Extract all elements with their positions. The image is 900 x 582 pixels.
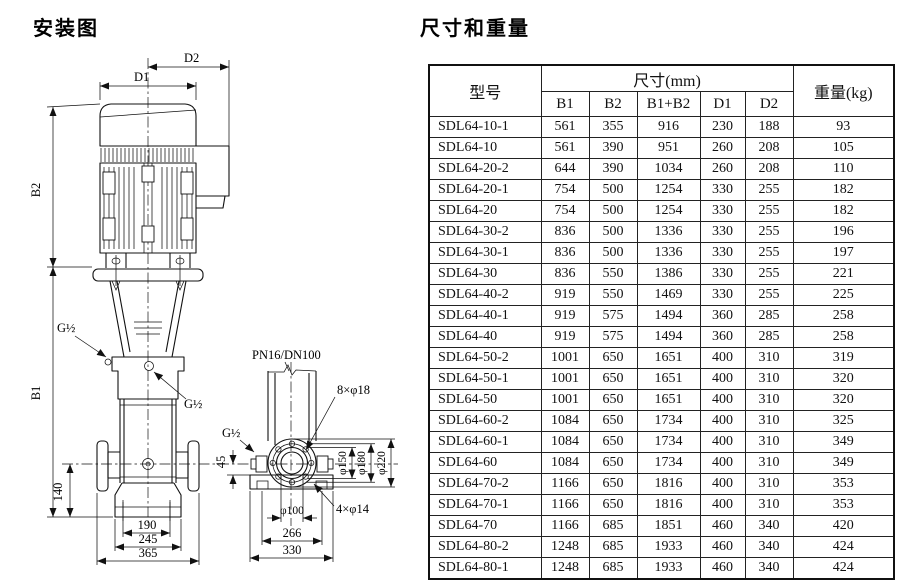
value-cell: 500 (589, 222, 637, 243)
value-cell: 258 (793, 306, 894, 327)
value-cell: 188 (745, 117, 793, 138)
value-cell: 420 (793, 516, 894, 537)
table-row: SDL64-308365501386330255221 (429, 264, 894, 285)
dim-330-label: 330 (283, 543, 302, 557)
model-cell: SDL64-80-1 (429, 558, 541, 580)
value-cell: 460 (700, 537, 745, 558)
value-cell: 1734 (637, 411, 700, 432)
value-cell: 1816 (637, 474, 700, 495)
value-cell: 330 (700, 180, 745, 201)
model-cell: SDL64-30-2 (429, 222, 541, 243)
value-cell: 255 (745, 180, 793, 201)
table-row: SDL64-50-110016501651400310320 (429, 369, 894, 390)
value-cell: 310 (745, 390, 793, 411)
model-cell: SDL64-50-1 (429, 369, 541, 390)
value-cell: 644 (541, 159, 589, 180)
model-cell: SDL64-30-1 (429, 243, 541, 264)
value-cell: 353 (793, 495, 894, 516)
dim-b2-label: B2 (29, 183, 43, 198)
value-cell: 182 (793, 201, 894, 222)
value-cell: 1816 (637, 495, 700, 516)
value-cell: 330 (700, 285, 745, 306)
value-cell: 340 (745, 558, 793, 580)
value-cell: 951 (637, 138, 700, 159)
value-cell: 575 (589, 327, 637, 348)
value-cell: 353 (793, 474, 894, 495)
dim-266-label: 266 (283, 526, 302, 540)
value-cell: 260 (700, 159, 745, 180)
value-cell: 390 (589, 138, 637, 159)
value-cell: 310 (745, 453, 793, 474)
value-cell: 400 (700, 495, 745, 516)
value-cell: 400 (700, 474, 745, 495)
value-cell: 400 (700, 432, 745, 453)
model-cell: SDL64-10 (429, 138, 541, 159)
value-cell: 1001 (541, 369, 589, 390)
port-g12-left-label: G½ (57, 321, 75, 335)
value-cell: 93 (793, 117, 894, 138)
value-cell: 355 (589, 117, 637, 138)
dim-190-label: 190 (138, 518, 157, 532)
dim-phi100-label: φ100 (280, 505, 304, 517)
table-row: SDL64-207545001254330255182 (429, 201, 894, 222)
value-cell: 349 (793, 453, 894, 474)
value-cell: 1386 (637, 264, 700, 285)
value-cell: 400 (700, 453, 745, 474)
model-cell: SDL64-50-2 (429, 348, 541, 369)
table-row: SDL64-10561390951260208105 (429, 138, 894, 159)
dim-365-label: 365 (139, 546, 158, 560)
bolt-holes-4-label: 4×φ14 (336, 502, 370, 516)
value-cell: 836 (541, 264, 589, 285)
value-cell: 1734 (637, 432, 700, 453)
value-cell: 919 (541, 285, 589, 306)
value-cell: 1001 (541, 348, 589, 369)
model-cell: SDL64-60-1 (429, 432, 541, 453)
value-cell: 258 (793, 327, 894, 348)
value-cell: 330 (700, 264, 745, 285)
pump-table-body: SDL64-10-156135591623018893SDL64-1056139… (429, 117, 894, 580)
value-cell: 255 (745, 201, 793, 222)
value-cell: 460 (700, 558, 745, 580)
value-cell: 340 (745, 537, 793, 558)
bolt-holes-8-label: 8×φ18 (337, 383, 370, 397)
table-row: SDL64-70-211666501816400310353 (429, 474, 894, 495)
value-cell: 400 (700, 390, 745, 411)
value-cell: 182 (793, 180, 894, 201)
dim-45-label: 45 (214, 456, 228, 469)
value-cell: 1469 (637, 285, 700, 306)
value-cell: 685 (589, 516, 637, 537)
col-header-d2: D2 (745, 92, 793, 117)
value-cell: 255 (745, 264, 793, 285)
value-cell: 550 (589, 285, 637, 306)
value-cell: 197 (793, 243, 894, 264)
value-cell: 310 (745, 411, 793, 432)
model-cell: SDL64-40-2 (429, 285, 541, 306)
col-header-weight: 重量(kg) (793, 65, 894, 117)
value-cell: 650 (589, 369, 637, 390)
model-cell: SDL64-60-2 (429, 411, 541, 432)
table-row: SDL64-20-26443901034260208110 (429, 159, 894, 180)
col-header-b1: B1 (541, 92, 589, 117)
value-cell: 1084 (541, 432, 589, 453)
value-cell: 1933 (637, 558, 700, 580)
table-row: SDL64-7011666851851460340420 (429, 516, 894, 537)
value-cell: 1248 (541, 558, 589, 580)
model-cell: SDL64-20-2 (429, 159, 541, 180)
dim-245-label: 245 (139, 532, 158, 546)
value-cell: 754 (541, 180, 589, 201)
table-row: SDL64-30-28365001336330255196 (429, 222, 894, 243)
dim-phi180-label: φ180 (356, 451, 368, 475)
value-cell: 561 (541, 138, 589, 159)
value-cell: 110 (793, 159, 894, 180)
value-cell: 685 (589, 558, 637, 580)
value-cell: 1933 (637, 537, 700, 558)
value-cell: 319 (793, 348, 894, 369)
value-cell: 196 (793, 222, 894, 243)
side-view-dimensions: 45 φ100 266 330 φ150 φ180 φ220 (214, 439, 395, 562)
value-cell: 285 (745, 327, 793, 348)
value-cell: 105 (793, 138, 894, 159)
model-cell: SDL64-20-1 (429, 180, 541, 201)
value-cell: 330 (700, 222, 745, 243)
value-cell: 424 (793, 537, 894, 558)
value-cell: 685 (589, 537, 637, 558)
value-cell: 400 (700, 348, 745, 369)
value-cell: 500 (589, 201, 637, 222)
col-header-d1: D1 (700, 92, 745, 117)
dim-b1-label: B1 (29, 386, 43, 401)
value-cell: 1001 (541, 390, 589, 411)
dimensions-weight-table: 型号 尺寸(mm) 重量(kg) B1 B2 B1+B2 D1 D2 SDL64… (428, 64, 895, 580)
value-cell: 1166 (541, 495, 589, 516)
value-cell: 360 (700, 327, 745, 348)
value-cell: 919 (541, 327, 589, 348)
table-row: SDL64-40-29195501469330255225 (429, 285, 894, 306)
value-cell: 255 (745, 285, 793, 306)
value-cell: 260 (700, 138, 745, 159)
value-cell: 1166 (541, 474, 589, 495)
model-cell: SDL64-70-1 (429, 495, 541, 516)
table-row: SDL64-10-156135591623018893 (429, 117, 894, 138)
model-cell: SDL64-70 (429, 516, 541, 537)
value-cell: 310 (745, 369, 793, 390)
value-cell: 650 (589, 390, 637, 411)
pump-side-view (250, 365, 333, 489)
col-header-dims-group: 尺寸(mm) (541, 65, 793, 92)
dim-phi220-label: φ220 (376, 451, 388, 475)
value-cell: 1336 (637, 222, 700, 243)
table-row: SDL64-50-210016501651400310319 (429, 348, 894, 369)
value-cell: 919 (541, 306, 589, 327)
value-cell: 836 (541, 222, 589, 243)
col-header-model: 型号 (429, 65, 541, 117)
motor-front-view (93, 104, 229, 290)
value-cell: 285 (745, 306, 793, 327)
value-cell: 360 (700, 306, 745, 327)
value-cell: 754 (541, 201, 589, 222)
table-row: SDL64-80-212486851933460340424 (429, 537, 894, 558)
table-row: SDL64-60-210846501734400310325 (429, 411, 894, 432)
value-cell: 1248 (541, 537, 589, 558)
value-cell: 650 (589, 432, 637, 453)
value-cell: 208 (745, 138, 793, 159)
flange-spec-label: PN16/DN100 (252, 348, 321, 362)
dim-d1-label: D1 (134, 70, 149, 84)
value-cell: 320 (793, 390, 894, 411)
table-row: SDL64-30-18365001336330255197 (429, 243, 894, 264)
table-row: SDL64-5010016501651400310320 (429, 390, 894, 411)
table-row: SDL64-40-19195751494360285258 (429, 306, 894, 327)
model-cell: SDL64-40-1 (429, 306, 541, 327)
value-cell: 330 (700, 243, 745, 264)
model-cell: SDL64-10-1 (429, 117, 541, 138)
value-cell: 575 (589, 306, 637, 327)
value-cell: 255 (745, 222, 793, 243)
value-cell: 1084 (541, 453, 589, 474)
value-cell: 310 (745, 348, 793, 369)
pump-installation-drawing: D2 D1 B2 B1 140 190 245 365 45 φ10 (0, 0, 420, 582)
table-row: SDL64-60-110846501734400310349 (429, 432, 894, 453)
value-cell: 650 (589, 348, 637, 369)
col-header-b2: B2 (589, 92, 637, 117)
value-cell: 1494 (637, 306, 700, 327)
value-cell: 1254 (637, 180, 700, 201)
value-cell: 1034 (637, 159, 700, 180)
value-cell: 561 (541, 117, 589, 138)
value-cell: 310 (745, 495, 793, 516)
value-cell: 424 (793, 558, 894, 580)
value-cell: 1851 (637, 516, 700, 537)
port-g12-side-label: G½ (222, 426, 240, 440)
value-cell: 230 (700, 117, 745, 138)
value-cell: 1254 (637, 201, 700, 222)
value-cell: 650 (589, 411, 637, 432)
value-cell: 1084 (541, 411, 589, 432)
model-cell: SDL64-70-2 (429, 474, 541, 495)
model-cell: SDL64-40 (429, 327, 541, 348)
value-cell: 500 (589, 180, 637, 201)
value-cell: 1336 (637, 243, 700, 264)
model-cell: SDL64-50 (429, 390, 541, 411)
model-cell: SDL64-30 (429, 264, 541, 285)
table-row: SDL64-6010846501734400310349 (429, 453, 894, 474)
value-cell: 460 (700, 516, 745, 537)
value-cell: 836 (541, 243, 589, 264)
table-title: 尺寸和重量 (420, 12, 530, 41)
model-cell: SDL64-60 (429, 453, 541, 474)
value-cell: 320 (793, 369, 894, 390)
dim-140-label: 140 (51, 483, 65, 502)
value-cell: 221 (793, 264, 894, 285)
value-cell: 208 (745, 159, 793, 180)
table-row: SDL64-70-111666501816400310353 (429, 495, 894, 516)
value-cell: 650 (589, 474, 637, 495)
table-row: SDL64-409195751494360285258 (429, 327, 894, 348)
port-g12-center-label: G½ (184, 397, 202, 411)
value-cell: 310 (745, 432, 793, 453)
value-cell: 225 (793, 285, 894, 306)
value-cell: 390 (589, 159, 637, 180)
value-cell: 400 (700, 411, 745, 432)
value-cell: 1651 (637, 348, 700, 369)
table-row: SDL64-20-17545001254330255182 (429, 180, 894, 201)
table-row: SDL64-80-112486851933460340424 (429, 558, 894, 580)
value-cell: 330 (700, 201, 745, 222)
dim-d2-label: D2 (184, 51, 199, 65)
dim-phi150-label: φ150 (337, 451, 349, 475)
value-cell: 1651 (637, 390, 700, 411)
value-cell: 310 (745, 474, 793, 495)
value-cell: 500 (589, 243, 637, 264)
value-cell: 1734 (637, 453, 700, 474)
value-cell: 650 (589, 495, 637, 516)
value-cell: 340 (745, 516, 793, 537)
value-cell: 349 (793, 432, 894, 453)
model-cell: SDL64-20 (429, 201, 541, 222)
value-cell: 400 (700, 369, 745, 390)
value-cell: 550 (589, 264, 637, 285)
value-cell: 1651 (637, 369, 700, 390)
value-cell: 1494 (637, 327, 700, 348)
model-cell: SDL64-80-2 (429, 537, 541, 558)
value-cell: 325 (793, 411, 894, 432)
col-header-b1b2: B1+B2 (637, 92, 700, 117)
value-cell: 255 (745, 243, 793, 264)
value-cell: 1166 (541, 516, 589, 537)
value-cell: 650 (589, 453, 637, 474)
value-cell: 916 (637, 117, 700, 138)
